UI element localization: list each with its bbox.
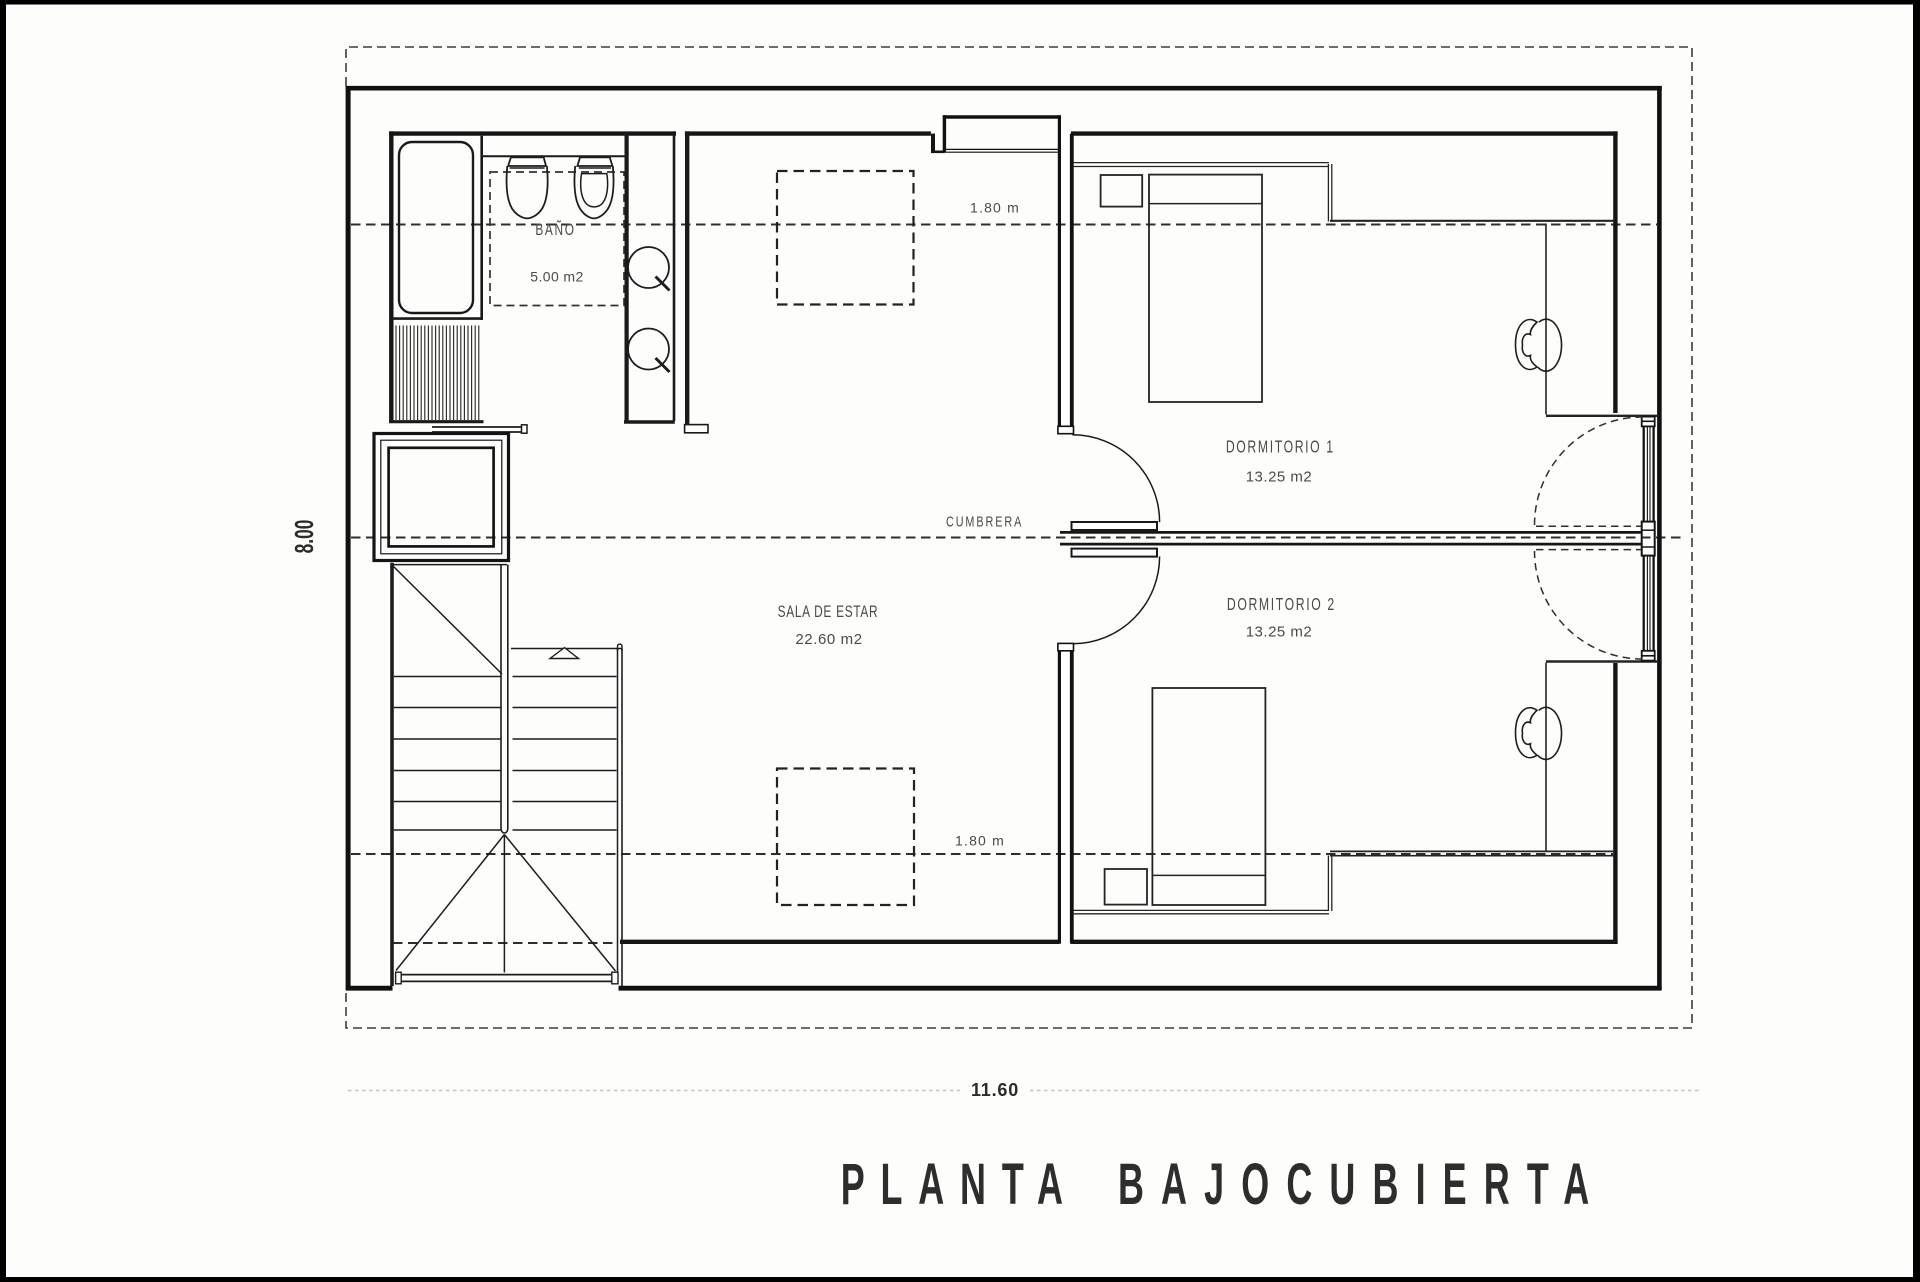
svg-text:SALA DE ESTAR: SALA DE ESTAR [778,603,879,622]
svg-text:13.25 m2: 13.25 m2 [1246,624,1313,641]
svg-text:PLANTA: PLANTA [841,1152,1079,1217]
svg-text:22.60 m2: 22.60 m2 [795,631,862,648]
svg-text:BAJOCUBIERTA: BAJOCUBIERTA [1118,1152,1606,1217]
svg-text:DORMITORIO 1: DORMITORIO 1 [1226,437,1335,457]
svg-text:1.80 m: 1.80 m [955,833,1005,849]
svg-text:DORMITORIO 2: DORMITORIO 2 [1227,595,1336,615]
svg-text:11.60: 11.60 [971,1080,1019,1100]
svg-text:5.00 m2: 5.00 m2 [530,269,583,285]
svg-text:8.00: 8.00 [290,520,319,554]
svg-text:1.80 m: 1.80 m [970,200,1020,216]
svg-text:BAÑO: BAÑO [535,220,575,240]
svg-text:CUMBRERA: CUMBRERA [946,513,1023,530]
svg-text:13.25 m2: 13.25 m2 [1246,469,1313,486]
